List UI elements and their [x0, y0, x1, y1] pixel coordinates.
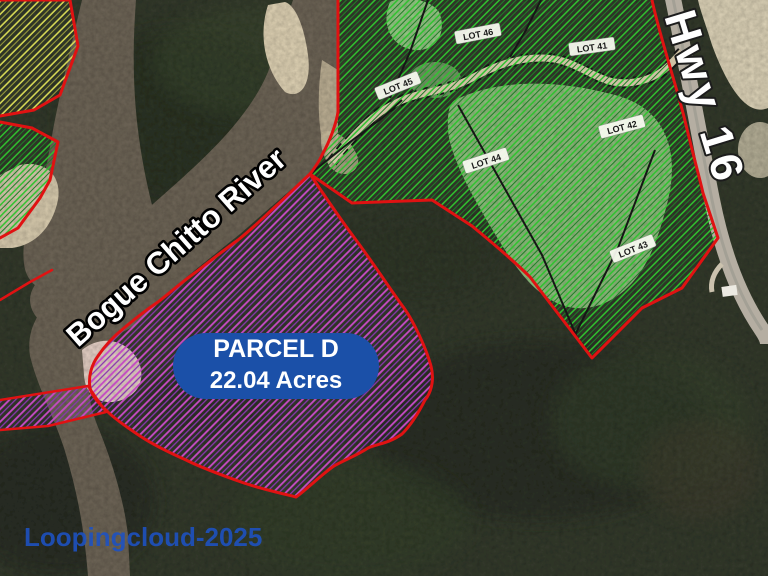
small-structure — [721, 285, 737, 297]
badge-acreage: 22.04 Acres — [210, 367, 343, 394]
parcel-map: LOT 41 LOT 42 LOT 43 LOT 44 LOT 45 LOT 4… — [0, 0, 768, 576]
parcel-map-canvas: LOT 41 LOT 42 LOT 43 LOT 44 LOT 45 LOT 4… — [0, 0, 768, 576]
badge-parcel-name: PARCEL D — [213, 335, 338, 363]
watermark: Loopingcloud-2025 — [24, 522, 262, 552]
parcel-badge: PARCEL D 22.04 Acres — [173, 333, 379, 399]
